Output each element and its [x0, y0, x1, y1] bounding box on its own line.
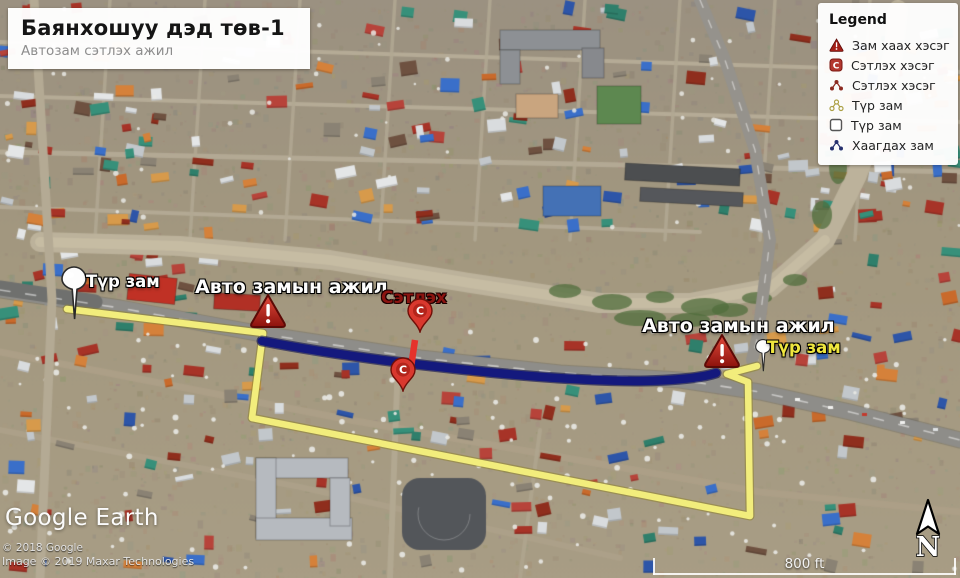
title-panel: Баянхошуу дэд төв-1 Автозам сэтлэх ажил [8, 8, 310, 69]
scale-bar-line [653, 573, 956, 575]
temp-road-polygon-icon [829, 118, 843, 132]
cut-section-badge-icon: C [829, 58, 843, 72]
label-temp-road-right: Түр зам [767, 338, 841, 357]
pushpin-temp-road-left-icon[interactable] [59, 266, 89, 322]
copyright-google: © 2018 Google [2, 542, 83, 554]
legend-title: Legend [829, 12, 949, 28]
legend-item-label: Сэтлэх хэсэг [851, 58, 935, 73]
road-close-warning-icon [829, 38, 844, 52]
page-title: Баянхошуу дэд төв-1 [21, 16, 297, 40]
legend-item-temp-road-polygon: Түр зам [829, 115, 949, 135]
legend-item-temp-road-path: Түр зам [829, 95, 949, 115]
legend-item-closed-road-path: Хаагдах зам [829, 135, 949, 155]
cut-section-pin-upper-icon[interactable]: C [407, 298, 433, 333]
scale-bar-tick-right [954, 558, 956, 575]
legend-item-road-close: Зам хаах хэсэг [829, 35, 949, 55]
legend-item-cut-path: Сэтлэх хэсэг [829, 75, 949, 95]
copyright-maxar: Image © 2019 Maxar Technologies [2, 555, 194, 568]
google-earth-logo: Google Earth [5, 505, 159, 531]
svg-text:C: C [399, 364, 407, 377]
legend-item-label: Сэтлэх хэсэг [852, 78, 936, 93]
legend-item-cut-badge: C Сэтлэх хэсэг [829, 55, 949, 75]
cut-section-pin-lower-icon[interactable]: C [390, 357, 416, 392]
label-roadwork-left: Авто замын ажил [195, 276, 388, 298]
closed-road-path-icon [829, 138, 844, 152]
legend-item-label: Зам хаах хэсэг [852, 38, 950, 53]
svg-text:C: C [833, 62, 840, 72]
scale-bar-tick-left [653, 558, 655, 575]
north-arrow-icon: N [908, 498, 948, 560]
svg-text:C: C [416, 305, 424, 318]
legend-panel: Legend Зам хаах хэсэг C Сэтлэх хэсэг Сэт… [818, 3, 958, 165]
legend-item-label: Түр зам [851, 118, 902, 133]
legend-item-label: Хаагдах зам [852, 138, 934, 153]
page-subtitle: Автозам сэтлэх ажил [21, 43, 297, 59]
temp-road-path-icon [829, 98, 844, 112]
legend-item-label: Түр зам [852, 98, 903, 113]
svg-text:N: N [916, 532, 941, 560]
roadwork-warning-left-icon[interactable] [248, 292, 288, 329]
cut-section-path-icon [829, 78, 844, 92]
roadwork-warning-right-icon[interactable] [702, 332, 742, 369]
label-temp-road-left: Түр зам [86, 272, 160, 291]
google-earth-window: Түр зам Авто замын ажил Сэтлэх C C Авто … [0, 0, 960, 578]
